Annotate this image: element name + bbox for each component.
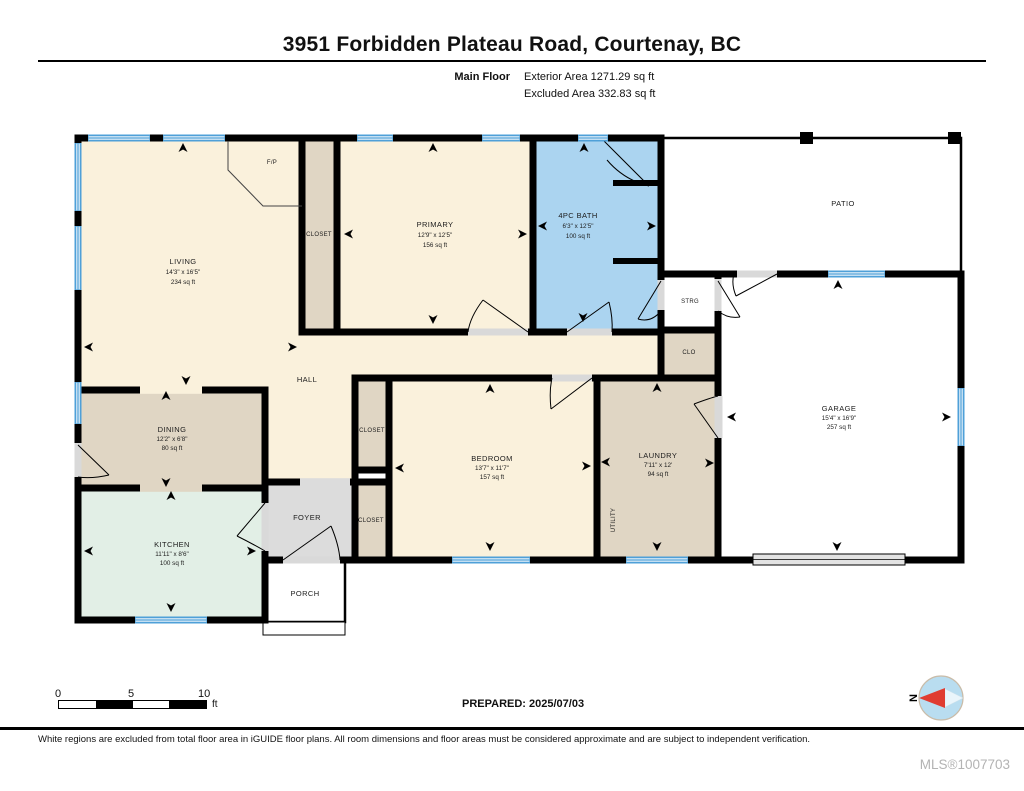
floor-plan-page: 3951 Forbidden Plateau Road, Courtenay, …	[0, 0, 1024, 791]
room-label: FOYER	[293, 513, 321, 522]
room-label: LIVING	[170, 257, 197, 266]
door-jamb	[715, 396, 723, 438]
room-label: CLOSET	[358, 518, 384, 524]
window	[958, 388, 965, 446]
room-area: 80 sq ft	[162, 445, 183, 452]
room-dims: 15'4" x 16'9"	[822, 415, 857, 422]
room-label: BEDROOM	[471, 454, 513, 463]
window-glazing-line	[358, 139, 393, 140]
room-area: 234 sq ft	[171, 279, 195, 286]
scale-bar: 0 5 10 ft	[50, 688, 240, 714]
door-jamb	[552, 375, 592, 382]
window-glazing-line	[829, 272, 885, 273]
door-jamb	[283, 557, 340, 564]
room-label: HALL	[297, 375, 317, 384]
window	[135, 617, 207, 624]
window	[75, 382, 82, 424]
bath-wall-stub	[613, 180, 661, 186]
room-label: PRIMARY	[417, 220, 454, 229]
room-label: 4PC BATH	[558, 211, 597, 220]
room-dims: 12'2" x 6'8"	[156, 436, 187, 443]
room-bath	[533, 138, 661, 332]
window-glazing-line	[76, 144, 77, 211]
room-label: PATIO	[831, 199, 854, 208]
window-glazing-line	[89, 136, 150, 137]
window-glazing-line	[76, 227, 77, 290]
window-glazing-line	[579, 136, 608, 137]
window-glazing-line	[136, 621, 207, 622]
porch-step	[263, 622, 345, 635]
scale-unit: ft	[212, 699, 218, 710]
window	[75, 143, 82, 211]
room-dims: 6'3" x 12'5"	[562, 223, 593, 230]
disclaimer-text: White regions are excluded from total fl…	[38, 734, 988, 745]
scale-tick: 5	[128, 688, 134, 700]
door-jamb	[468, 329, 528, 336]
window-glazing-line	[164, 139, 225, 140]
room-dims: 13'7" x 11'7"	[475, 465, 509, 472]
room-dims: 11'11" x 8'6"	[155, 551, 189, 558]
fireplace-label: F/P	[267, 160, 277, 166]
window-glazing-line	[627, 558, 688, 559]
room-label: CLOSET	[306, 232, 332, 238]
window	[163, 135, 225, 142]
window-glazing-line	[453, 561, 530, 562]
opening-hall-foyer	[300, 478, 350, 486]
window	[578, 135, 608, 142]
window	[88, 135, 150, 142]
window	[482, 135, 520, 142]
window	[626, 557, 688, 564]
room-dims: 14'3" x 16'5"	[166, 269, 201, 276]
compass-icon: N	[908, 676, 963, 720]
room-area: 157 sq ft	[480, 474, 504, 481]
bath-wall-stub	[613, 258, 661, 264]
window-glazing-line	[358, 136, 393, 137]
window-glazing-line	[579, 139, 608, 140]
floor-plan-drawing: LIVING 14'3" x 16'5" 234 sq ft PRIMARY 1…	[0, 0, 1024, 791]
window-glazing-line	[76, 383, 77, 424]
window-glazing-line	[959, 389, 960, 446]
room-label: LAUNDRY	[639, 451, 678, 460]
scale-tick: 10	[198, 688, 210, 700]
scale-tick: 0	[55, 688, 61, 700]
footer-divider	[0, 727, 1024, 730]
window-glazing-line	[483, 139, 520, 140]
room-area: 94 sq ft	[648, 471, 669, 478]
room-area: 100 sq ft	[566, 233, 590, 240]
prepared-date: PREPARED: 2025/07/03	[462, 698, 584, 710]
room-label: DINING	[158, 425, 187, 434]
room-label: CLO	[682, 350, 695, 356]
room-area: 156 sq ft	[423, 242, 447, 249]
window-glazing-line	[136, 618, 207, 619]
opening-living-dining	[140, 386, 202, 394]
room-dims: 12'9" x 12'5"	[418, 232, 453, 239]
window	[75, 226, 82, 290]
patio-post	[800, 132, 813, 144]
north-label: N	[908, 694, 920, 702]
room-label: STRG	[681, 299, 699, 305]
window-glazing-line	[164, 136, 225, 137]
window-glazing-line	[483, 136, 520, 137]
window-glazing-line	[79, 383, 80, 424]
window-glazing-line	[627, 561, 688, 562]
window-glazing-line	[79, 227, 80, 290]
mls-number: MLS®1007703	[920, 757, 1010, 772]
room-area: 100 sq ft	[160, 560, 184, 567]
door-jamb	[75, 443, 82, 477]
room-label: UTILITY	[611, 508, 617, 532]
window-glazing-line	[453, 558, 530, 559]
door-jamb	[567, 329, 612, 336]
room-patio	[661, 138, 961, 274]
room-label: PORCH	[290, 589, 319, 598]
window	[357, 135, 393, 142]
window-glazing-line	[962, 389, 963, 446]
patio-post	[948, 132, 961, 144]
door-jamb	[262, 503, 269, 551]
window	[452, 557, 530, 564]
window-glazing-line	[89, 139, 150, 140]
window-glazing-line	[829, 275, 885, 276]
scale-bar-segments	[58, 700, 207, 709]
window	[828, 271, 885, 278]
door-jamb	[715, 279, 722, 311]
opening-dining-kitchen	[140, 484, 202, 492]
room-label: KITCHEN	[154, 540, 190, 549]
window-glazing-line	[79, 144, 80, 211]
room-label: CLOSET	[359, 428, 385, 434]
door-jamb	[737, 271, 777, 278]
room-label: GARAGE	[822, 404, 857, 413]
room-closet-mid	[355, 378, 389, 470]
room-dims: 7'11" x 12'	[644, 462, 672, 469]
room-area: 257 sq ft	[827, 424, 851, 431]
